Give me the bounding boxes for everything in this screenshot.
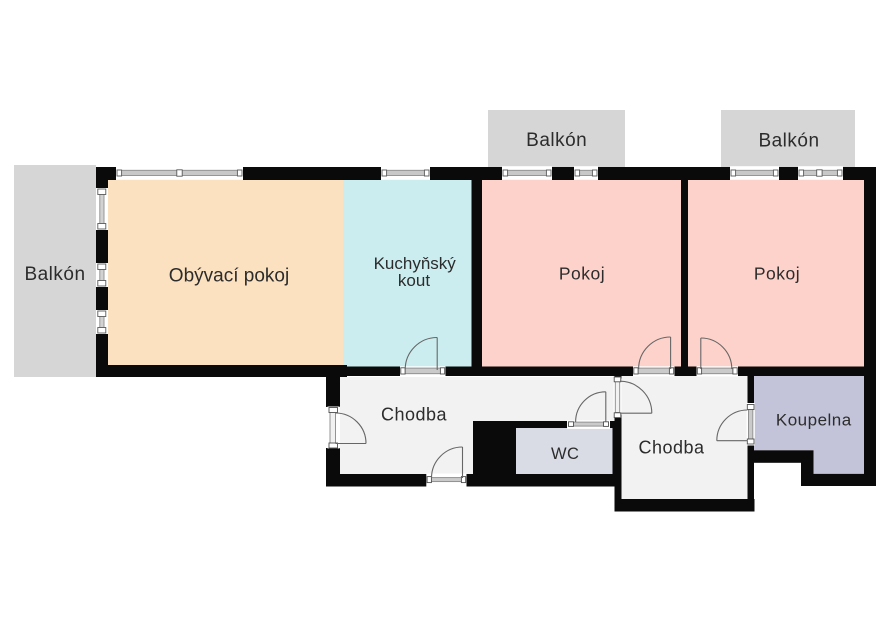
svg-text:Chodba: Chodba [381,405,448,425]
svg-text:Balkón: Balkón [526,130,587,151]
svg-text:kout: kout [398,271,430,290]
svg-text:WC: WC [551,445,580,463]
svg-text:Koupelna: Koupelna [776,410,852,429]
svg-text:Chodba: Chodba [638,437,705,457]
svg-text:Obývací pokoj: Obývací pokoj [169,265,289,286]
svg-text:Pokoj: Pokoj [559,264,605,284]
svg-text:Pokoj: Pokoj [754,264,800,284]
svg-text:Balkón: Balkón [758,130,819,151]
svg-text:Balkón: Balkón [24,264,85,285]
